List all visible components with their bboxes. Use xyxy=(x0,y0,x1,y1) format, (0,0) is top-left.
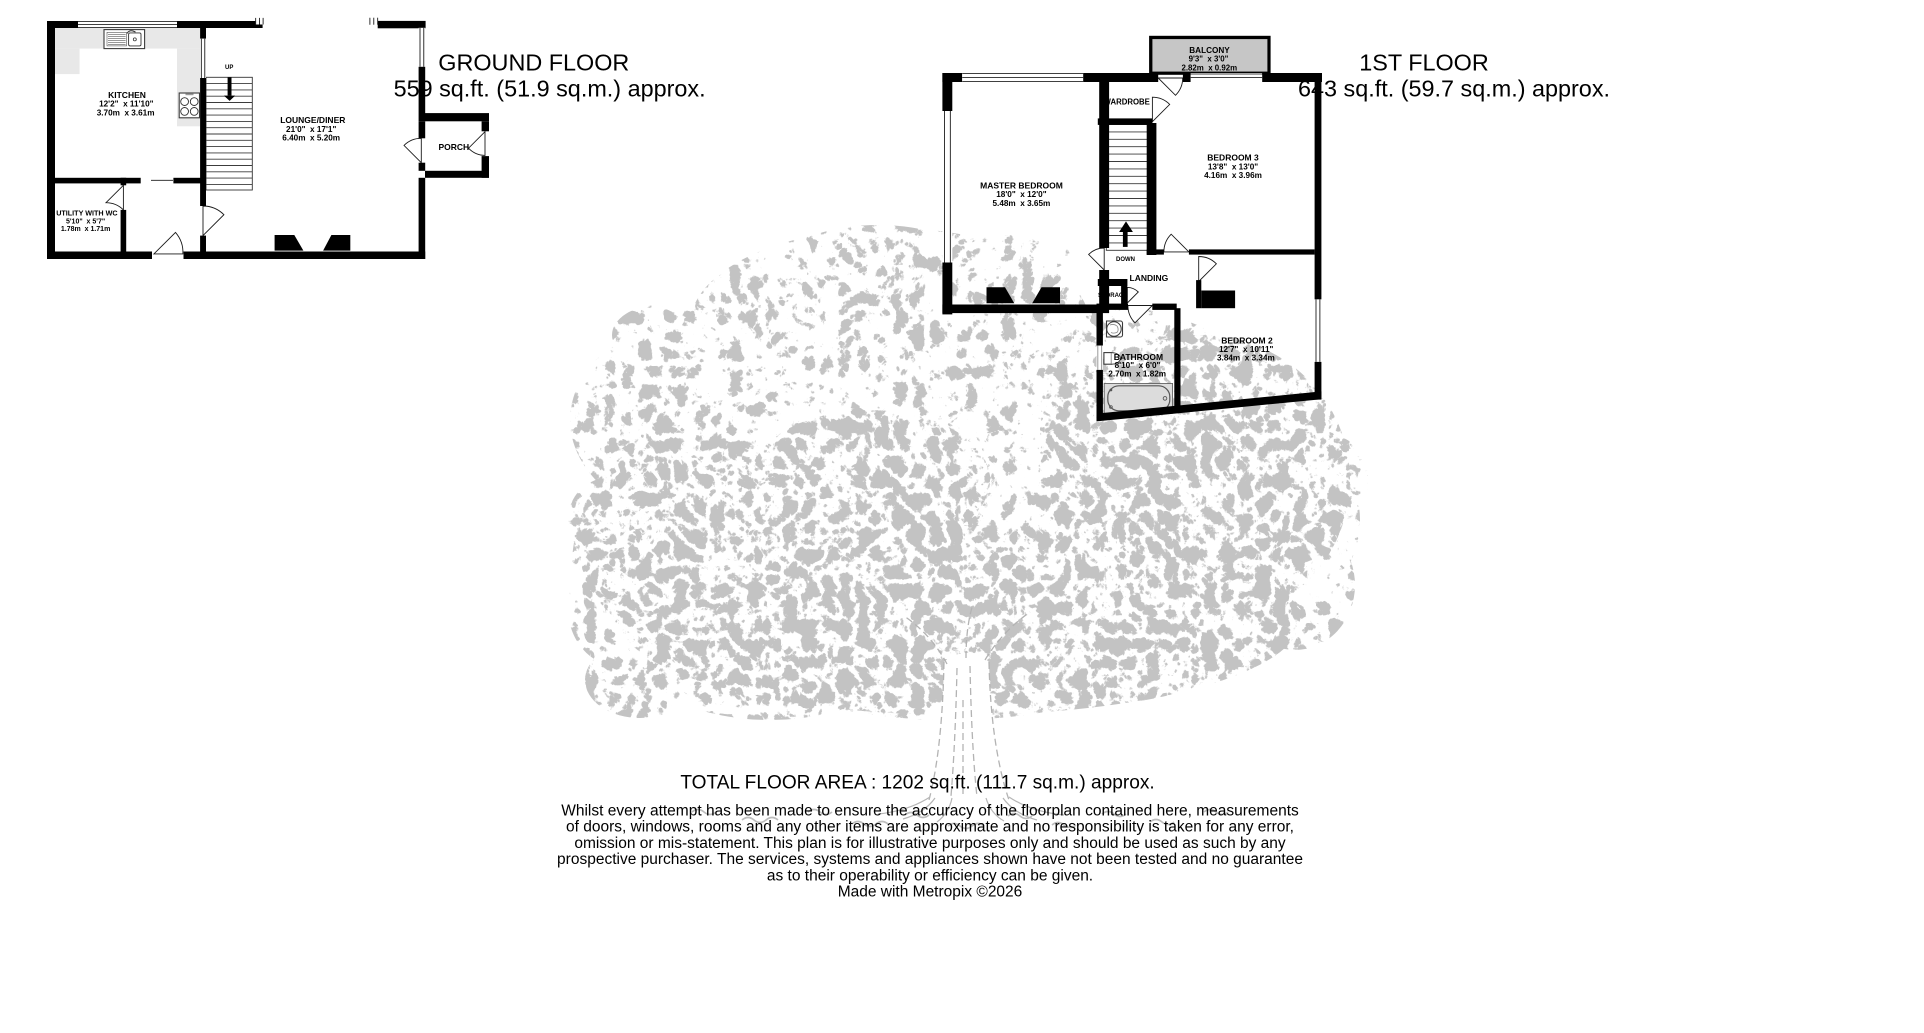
svg-text:643 sq.ft. (59.7 sq.m.) approx: 643 sq.ft. (59.7 sq.m.) approx. xyxy=(1298,75,1610,101)
svg-text:8'10" x 6'0": 8'10" x 6'0" xyxy=(1115,361,1161,370)
svg-text:3.84m x 3.34m: 3.84m x 3.34m xyxy=(1217,354,1275,363)
svg-text:DOWN: DOWN xyxy=(1116,257,1135,263)
svg-text:as to their operability or eff: as to their operability or efficiency ca… xyxy=(767,867,1093,884)
svg-text:TOTAL FLOOR AREA : 1202 sq.ft.: TOTAL FLOOR AREA : 1202 sq.ft. (111.7 sq… xyxy=(680,772,1154,793)
svg-text:21'0" x 17'1": 21'0" x 17'1" xyxy=(286,125,336,134)
svg-text:12'2" x 11'10": 12'2" x 11'10" xyxy=(99,100,154,109)
svg-text:BALCONY: BALCONY xyxy=(1189,46,1230,55)
svg-text:UTILITY WITH WC: UTILITY WITH WC xyxy=(56,209,117,218)
svg-text:Made with Metropix ©2026: Made with Metropix ©2026 xyxy=(838,884,1023,901)
svg-text:LANDING: LANDING xyxy=(1130,273,1169,283)
svg-text:of doors, windows, rooms and a: of doors, windows, rooms and any other i… xyxy=(566,819,1294,836)
svg-text:6.40m x 5.20m: 6.40m x 5.20m xyxy=(282,134,340,143)
svg-text:PORCH: PORCH xyxy=(438,142,469,152)
svg-text:2.70m x 1.82m: 2.70m x 1.82m xyxy=(1108,370,1166,379)
svg-text:4.16m x 3.96m: 4.16m x 3.96m xyxy=(1204,171,1262,180)
svg-text:omission or mis-statement. Thi: omission or mis-statement. This plan is … xyxy=(574,835,1286,852)
svg-text:3.70m x 3.61m: 3.70m x 3.61m xyxy=(97,108,155,117)
svg-text:BEDROOM 3: BEDROOM 3 xyxy=(1207,153,1259,163)
svg-text:18'0" x 12'0": 18'0" x 12'0" xyxy=(996,190,1046,199)
svg-text:STORAGE: STORAGE xyxy=(1098,293,1128,299)
svg-text:Whilst every attempt has been: Whilst every attempt has been made to en… xyxy=(561,803,1299,820)
svg-text:5.48m x 3.65m: 5.48m x 3.65m xyxy=(992,199,1050,208)
svg-text:1.78m x 1.71m: 1.78m x 1.71m xyxy=(61,226,110,233)
svg-text:9'3" x 3'0": 9'3" x 3'0" xyxy=(1189,55,1229,64)
svg-text:MASTER BEDROOM: MASTER BEDROOM xyxy=(980,181,1063,191)
svg-text:UP: UP xyxy=(225,65,233,71)
svg-text:2.82m x 0.92m: 2.82m x 0.92m xyxy=(1181,63,1237,72)
svg-text:WARDROBE: WARDROBE xyxy=(1104,98,1150,107)
svg-text:5'10" x 5'7": 5'10" x 5'7" xyxy=(66,218,105,225)
svg-text:13'8" x 13'0": 13'8" x 13'0" xyxy=(1208,162,1258,171)
svg-text:GROUND FLOOR: GROUND FLOOR xyxy=(438,49,629,75)
svg-text:prospective purchaser. The ser: prospective purchaser. The services, sys… xyxy=(557,851,1303,868)
svg-text:559 sq.ft. (51.9 sq.m.) approx: 559 sq.ft. (51.9 sq.m.) approx. xyxy=(394,75,706,101)
svg-text:1ST FLOOR: 1ST FLOOR xyxy=(1359,49,1489,75)
svg-text:LOUNGE/DINER: LOUNGE/DINER xyxy=(280,115,345,125)
svg-text:KITCHEN: KITCHEN xyxy=(108,90,146,100)
